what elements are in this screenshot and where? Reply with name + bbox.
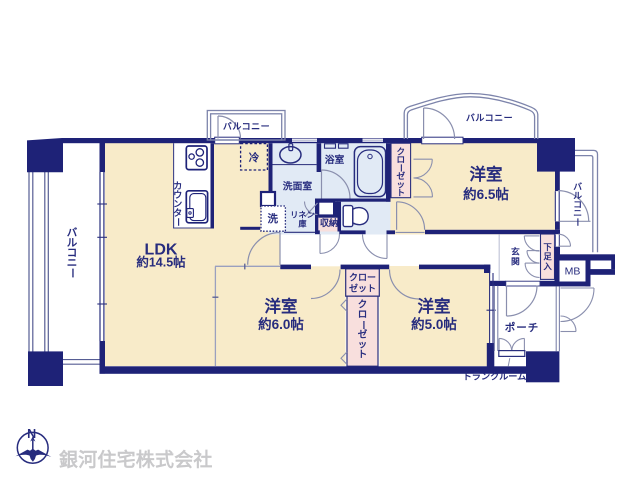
- svg-text:約6.0帖: 約6.0帖: [258, 316, 304, 332]
- svg-text:ー: ー: [173, 217, 183, 226]
- svg-text:ト: ト: [358, 350, 368, 361]
- svg-text:ー: ー: [357, 320, 368, 330]
- svg-text:下: 下: [543, 242, 552, 252]
- svg-text:洗: 洗: [268, 212, 279, 225]
- svg-text:バルコニー: バルコニー: [223, 122, 270, 132]
- svg-text:約14.5帖: 約14.5帖: [136, 255, 186, 270]
- svg-text:ポーチ: ポーチ: [505, 321, 540, 334]
- svg-text:クロー: クロー: [349, 273, 376, 283]
- svg-text:ー: ー: [66, 268, 78, 279]
- svg-text:約5.0帖: 約5.0帖: [411, 316, 457, 332]
- svg-text:洋室: 洋室: [418, 296, 451, 316]
- svg-text:バルコニー: バルコニー: [466, 113, 513, 123]
- svg-text:ゼット: ゼット: [349, 283, 376, 294]
- svg-text:銀河住宅株式会社: 銀河住宅株式会社: [59, 448, 213, 471]
- svg-text:タ: タ: [173, 207, 182, 218]
- svg-text:ロ: ロ: [358, 310, 368, 321]
- svg-text:リネン: リネン: [290, 210, 315, 220]
- svg-text:玄: 玄: [511, 246, 520, 257]
- svg-text:洋室: 洋室: [265, 296, 298, 316]
- svg-text:関: 関: [511, 257, 520, 267]
- svg-text:MB: MB: [565, 266, 581, 278]
- svg-text:約6.5帖: 約6.5帖: [463, 186, 509, 202]
- svg-text:冷: 冷: [249, 151, 260, 164]
- svg-text:洋室: 洋室: [470, 164, 503, 184]
- svg-text:トランクルーム: トランクルーム: [463, 371, 527, 381]
- svg-text:庫: 庫: [298, 219, 306, 229]
- svg-text:ニ: ニ: [573, 208, 582, 218]
- svg-text:足: 足: [543, 251, 552, 261]
- svg-text:ー: ー: [573, 218, 583, 227]
- svg-text:浴室: 浴室: [325, 153, 345, 166]
- svg-text:ト: ト: [396, 188, 405, 198]
- svg-text:洗面室: 洗面室: [283, 180, 313, 193]
- svg-text:収納: 収納: [320, 217, 338, 228]
- svg-text:入: 入: [542, 261, 552, 271]
